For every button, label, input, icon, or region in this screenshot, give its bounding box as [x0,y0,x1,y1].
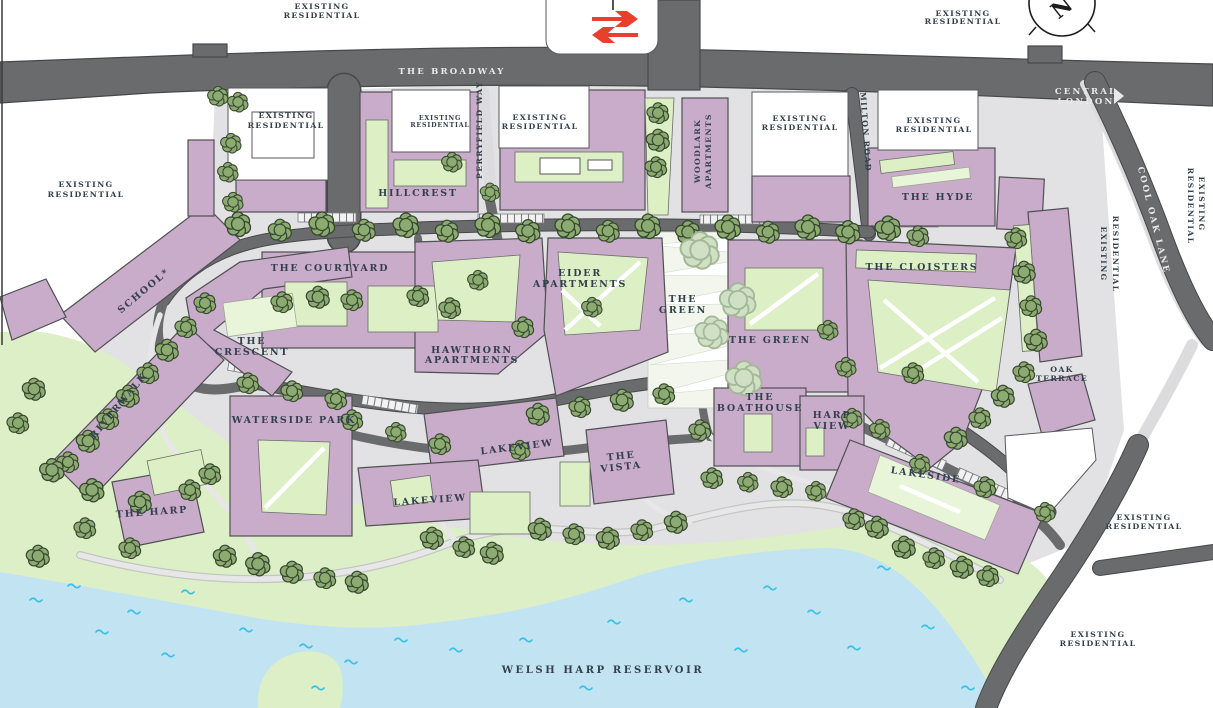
waterside-label: WATERSIDE PARK [231,415,356,426]
existing-residential-label: EXISTING [59,180,114,189]
svg-text:APARTMENTS: APARTMENTS [532,279,627,290]
existing-residential-label: EXISTING [513,113,568,122]
svg-text:CRESCENT: CRESCENT [215,347,290,358]
svg-text:RESIDENTIAL: RESIDENTIAL [762,123,839,132]
harp-view-label: HARP [813,410,852,421]
compass-north-icon: N [1029,0,1095,36]
svg-text:RESIDENTIAL: RESIDENTIAL [1111,216,1120,293]
existing-residential-label: EXISTING [1099,227,1108,282]
existing-residential-label: EXISTING [1117,513,1172,522]
the-hyde-label: THE HYDE [902,192,974,203]
existing-block-r1 [752,92,848,176]
svg-text:RESIDENTIAL: RESIDENTIAL [1060,639,1137,648]
crescent-label: THE [238,336,267,347]
station-forecourt [546,0,658,54]
courtyard-green [744,414,772,452]
existing-residential-label: EXISTING [295,2,350,11]
courtyard-green [470,492,530,534]
svg-text:RESIDENTIAL: RESIDENTIAL [410,122,469,129]
courtyard-label: THE COURTYARD [271,263,390,274]
road-stub-north-2 [1028,46,1062,63]
map-canvas: N EXISTING RESIDENTIAL EXISTING RESIDENT… [0,0,1213,708]
road-label-central-london: CENTRAL [1055,87,1117,97]
building-milton-west [752,176,850,222]
the-green-building-label: THE GREEN [729,335,811,346]
svg-text:BOATHOUSE: BOATHOUSE [717,403,803,414]
courtyard-green [560,462,590,506]
masterplan-map: N EXISTING RESIDENTIAL EXISTING RESIDENT… [0,0,1213,708]
svg-text:VIEW: VIEW [813,421,851,432]
road-stub-north-1 [193,44,227,57]
woodlark-label: WOODLARK [693,119,702,184]
existing-residential-label: EXISTING [419,115,461,122]
existing-residential-label: EXISTING [907,116,962,125]
svg-text:APARTMENTS: APARTMENTS [424,355,519,366]
svg-text:RESIDENTIAL: RESIDENTIAL [248,121,325,130]
svg-text:RESIDENTIAL: RESIDENTIAL [1106,522,1183,531]
existing-residential-label: EXISTING [1071,630,1126,639]
svg-text:RESIDENTIAL: RESIDENTIAL [925,17,1002,26]
svg-text:RESIDENTIAL: RESIDENTIAL [1186,168,1195,245]
svg-text:RESIDENTIAL: RESIDENTIAL [502,122,579,131]
svg-text:RESIDENTIAL: RESIDENTIAL [48,190,125,199]
path-perryfield [483,92,491,196]
oak-terrace-label: OAK [1050,365,1074,374]
existing-residential-label: EXISTING [259,111,314,120]
svg-text:TERRACE: TERRACE [1036,374,1088,383]
cloisters-label: THE CLOISTERS [866,262,979,273]
existing-residential-label: EXISTING [1197,177,1206,232]
svg-text:APARTMENTS: APARTMENTS [704,113,713,190]
road-label-perryfield: PERRYFIELD WAY [475,81,484,179]
boathouse-label: THE [746,392,775,403]
svg-text:RESIDENTIAL: RESIDENTIAL [284,11,361,20]
svg-text:GREEN: GREEN [659,305,707,316]
building-north-bar [236,180,326,212]
building-north-tower [188,140,214,216]
road-label-broadway: THE BROADWAY [398,67,505,77]
courtyard-green [806,428,824,456]
existing-residential-label: EXISTING [773,114,828,123]
hillcrest-label: HILLCREST [378,188,458,199]
svg-text:LONDON: LONDON [1058,97,1115,107]
eider-label: EIDER [558,268,602,279]
reservoir-label: WELSH HARP RESERVOIR [501,665,705,676]
the-green-strip-label: THE [669,294,698,305]
svg-text:RESIDENTIAL: RESIDENTIAL [896,125,973,134]
